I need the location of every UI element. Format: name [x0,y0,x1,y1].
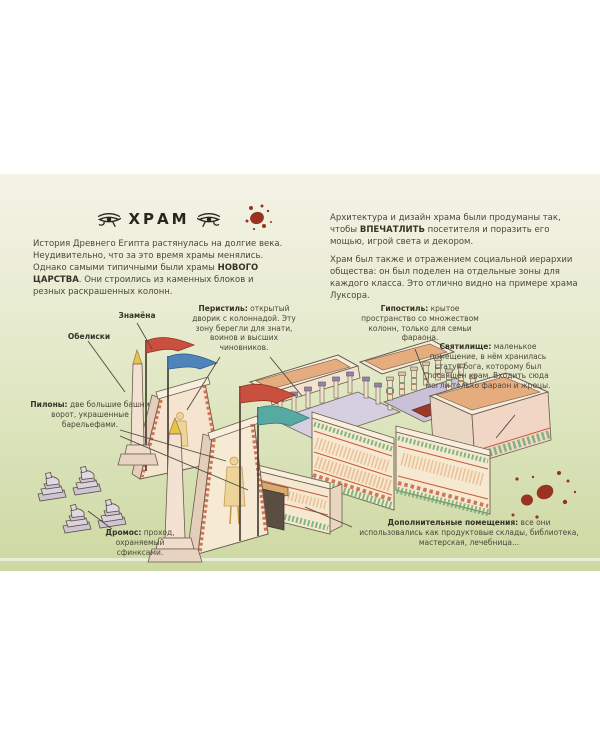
eye-of-horus-left-icon [97,212,121,227]
leader-peristyle-1 [187,357,220,410]
leader-peristyle-2 [270,357,302,396]
eye-of-horus-right-icon [197,212,221,227]
leader-pylons-2 [120,436,248,490]
leader-banners [137,323,152,349]
leader-hypostyle [415,349,428,383]
leader-pylons-1 [120,430,226,461]
leader-sanctuary [496,415,515,438]
intro-paragraph-left: История Древнего Египта растянулась на д… [33,238,286,298]
leader-dromos [88,511,112,529]
ink-splatter-top [240,201,278,235]
intro-paragraph-right-2: Храм был также и отражением социальной и… [330,254,580,302]
page-title: ХРАМ [128,210,189,228]
intro-paragraph-right-1: Архитектура и дизайн храма были продуман… [330,212,580,248]
leader-obelisks [88,341,125,392]
leader-extra-rooms [305,507,352,527]
page-title-row: ХРАМ [96,206,222,232]
intro-right-bold: ВПЕЧАТЛИТЬ [360,225,425,235]
leader-lines [0,300,600,560]
